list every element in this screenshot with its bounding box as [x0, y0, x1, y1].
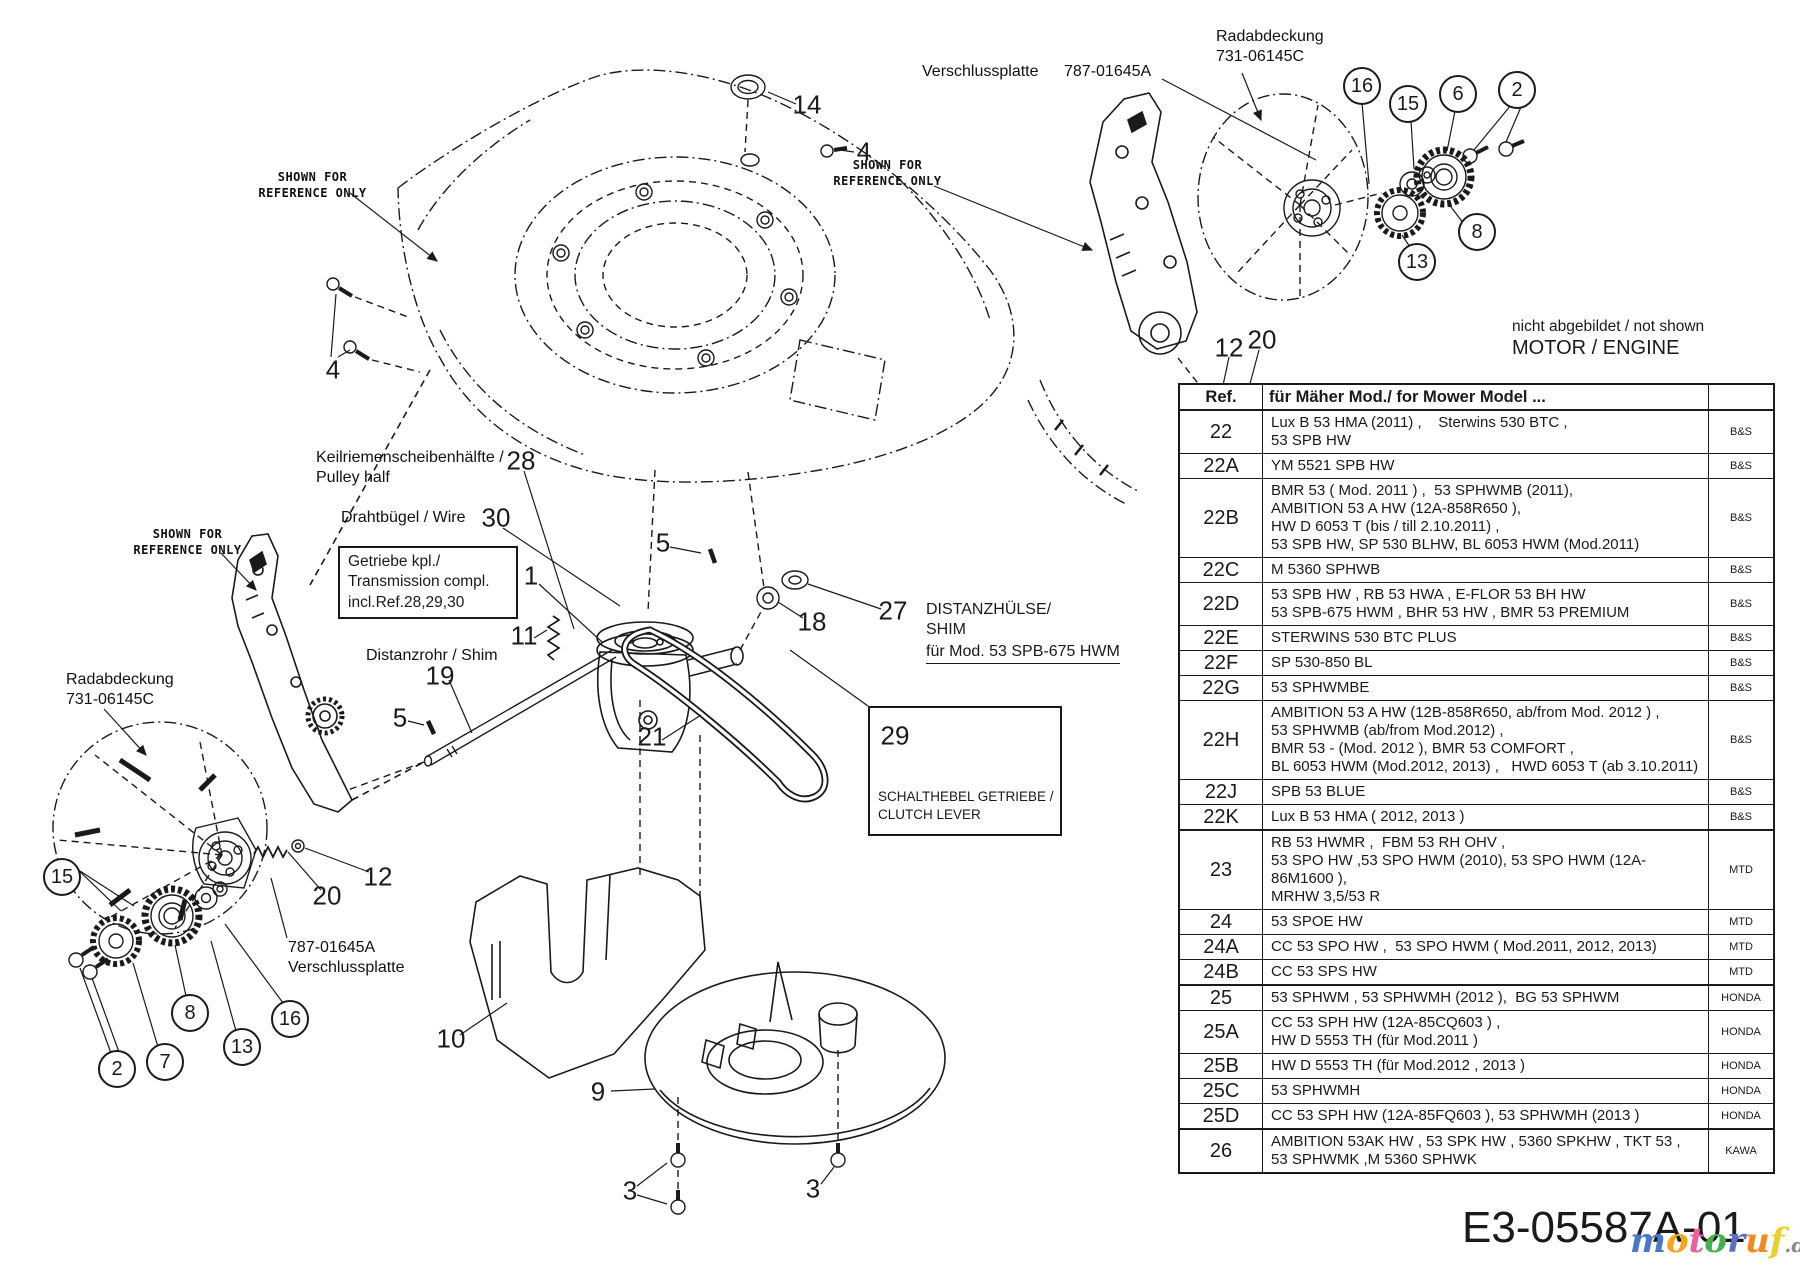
- cell-ref: 23: [1179, 830, 1263, 910]
- cell-brand: B&S: [1709, 454, 1775, 479]
- table-row: 22BBMR 53 ( Mod. 2011 ) , 53 SPHWMB (201…: [1179, 479, 1774, 558]
- cell-modelsc: 53 SPHWM , 53 SPHWMH (2012 ), BG 53 SPHW…: [1263, 985, 1709, 1011]
- table-row: 24BCC 53 SPS HWMTD: [1179, 960, 1774, 986]
- circled-6-right: 6: [1439, 75, 1477, 113]
- table-row: 26AMBITION 53AK HW , 53 SPK HW , 5360 SP…: [1179, 1129, 1774, 1173]
- cell-brand: HONDA: [1709, 1054, 1775, 1079]
- cell-ref: 22K: [1179, 805, 1263, 831]
- spacer-part-27: [748, 472, 808, 589]
- table-row: 22AYM 5521 SPB HWB&S: [1179, 454, 1774, 479]
- table-row: 24ACC 53 SPO HW , 53 SPO HWM ( Mod.2011,…: [1179, 935, 1774, 960]
- screws-part-4-left: [327, 278, 420, 372]
- callout-12-right: 12: [1215, 333, 1244, 364]
- watermark-letter: m: [1630, 1221, 1666, 1261]
- cell-ref: 25: [1179, 985, 1263, 1011]
- cell-ref: 25D: [1179, 1104, 1263, 1130]
- cell-brand: MTD: [1709, 910, 1775, 935]
- callout-12-left: 12: [364, 862, 393, 893]
- distance-sleeve-note: DISTANZHÜLSE/ SHIM für Mod. 53 SPB-675 H…: [926, 600, 1120, 664]
- circled-8-left: 8: [171, 994, 209, 1032]
- cell-modelsc: CC 53 SPO HW , 53 SPO HWM ( Mod.2011, 20…: [1263, 935, 1709, 960]
- callout-20-left: 20: [313, 881, 342, 912]
- distance-sleeve-model-note: für Mod. 53 SPB-675 HWM: [926, 642, 1120, 664]
- callout-3-right: 3: [806, 1174, 820, 1205]
- callout-4-left: 4: [326, 355, 340, 386]
- cell-ref: 22H: [1179, 701, 1263, 780]
- cell-modelsc: SP 530-850 BL: [1263, 651, 1709, 676]
- callout-14: 14: [793, 90, 822, 121]
- cell-brand: B&S: [1709, 780, 1775, 805]
- cell-modelsc: AMBITION 53AK HW , 53 SPK HW , 5360 SPKH…: [1263, 1129, 1709, 1173]
- cell-modelsc: 53 SPHWMBE: [1263, 676, 1709, 701]
- callout-5-left: 5: [393, 703, 407, 734]
- cell-ref: 26: [1179, 1129, 1263, 1173]
- cell-modelsc: AMBITION 53 A HW (12B-858R650, ab/from M…: [1263, 701, 1709, 780]
- transmission-note-box: Getriebe kpl./ Transmission compl. incl.…: [338, 546, 518, 619]
- callout-29: 29: [881, 721, 910, 752]
- belt-cover-part-10: [470, 868, 705, 1078]
- cell-modelsc: 53 SPHWMH: [1263, 1079, 1709, 1104]
- watermark: motoruf.de: [1630, 1224, 1800, 1258]
- cell-brand: B&S: [1709, 479, 1775, 558]
- cell-ref: 22: [1179, 410, 1263, 454]
- watermark-letter: u: [1745, 1221, 1770, 1261]
- cell-modelsc: M 5360 SPHWB: [1263, 558, 1709, 583]
- deck-bolt-holes: [553, 184, 797, 366]
- callout-5-mid: 5: [656, 528, 670, 559]
- watermark-letter: f: [1770, 1221, 1785, 1261]
- table-row: 25BHW D 5553 TH (für Mod.2012 , 2013 )HO…: [1179, 1054, 1774, 1079]
- callout-28: 28: [507, 446, 536, 477]
- circled-15-right: 15: [1389, 85, 1427, 123]
- callout-4-top: 4: [857, 137, 871, 168]
- cell-modelsc: CC 53 SPS HW: [1263, 960, 1709, 986]
- model-table-body: 22Lux B 53 HMA (2011) , Sterwins 530 BTC…: [1179, 410, 1774, 1173]
- right-gear-cluster: [1335, 141, 1524, 236]
- header-brand: [1709, 384, 1775, 410]
- cell-ref: 25B: [1179, 1054, 1263, 1079]
- clutch-lever-label: SCHALTHEBEL GETRIEBE / CLUTCH LEVER: [878, 788, 1054, 823]
- cell-ref: 24: [1179, 910, 1263, 935]
- cell-ref: 22J: [1179, 780, 1263, 805]
- header-model: für Mäher Mod./ for Mower Model ...: [1263, 384, 1709, 410]
- pin-part-5-left: [428, 721, 434, 734]
- table-row: 22Lux B 53 HMA (2011) , Sterwins 530 BTC…: [1179, 410, 1774, 454]
- washer-part-18: [740, 587, 779, 650]
- table-row: 22KLux B 53 HMA ( 2012, 2013 )B&S: [1179, 805, 1774, 831]
- callout-21: 21: [638, 722, 667, 753]
- radabdeckung-label-left: Radabdeckung 731-06145C: [66, 670, 174, 709]
- cell-modelsc: RB 53 HWMR , FBM 53 RH OHV , 53 SPO HW ,…: [1263, 830, 1709, 910]
- callout-18: 18: [798, 607, 827, 638]
- table-row: 25C53 SPHWMHHONDA: [1179, 1079, 1774, 1104]
- table-row: 22ESTERWINS 530 BTC PLUSB&S: [1179, 626, 1774, 651]
- table-row: 22JSPB 53 BLUEB&S: [1179, 780, 1774, 805]
- header-ref: Ref.: [1179, 384, 1263, 410]
- cell-brand: HONDA: [1709, 1011, 1775, 1054]
- callout-3-left: 3: [623, 1176, 637, 1207]
- spring-part-11: [548, 616, 559, 660]
- cell-brand: B&S: [1709, 805, 1775, 831]
- cell-modelsc: HW D 5553 TH (für Mod.2012 , 2013 ): [1263, 1054, 1709, 1079]
- right-closure-plate-dashed: [1028, 380, 1140, 505]
- cell-brand: HONDA: [1709, 1079, 1775, 1104]
- circled-13-right: 13: [1398, 243, 1436, 281]
- cell-brand: MTD: [1709, 935, 1775, 960]
- callout-1: 1: [524, 561, 538, 592]
- cell-modelsc: BMR 53 ( Mod. 2011 ) , 53 SPHWMB (2011),…: [1263, 479, 1709, 558]
- shown-for-reference-top: SHOWN FOR REFERENCE ONLY: [240, 170, 385, 201]
- cell-modelsc: 53 SPB HW , RB 53 HWA , E-FLOR 53 BH HW …: [1263, 583, 1709, 626]
- callout-27: 27: [879, 596, 908, 627]
- circled-13-left: 13: [223, 1028, 261, 1066]
- table-row: 2453 SPOE HWMTD: [1179, 910, 1774, 935]
- cell-modelsc: CC 53 SPH HW (12A-85FQ603 ), 53 SPHWMH (…: [1263, 1104, 1709, 1130]
- cell-brand: B&S: [1709, 583, 1775, 626]
- grommet-part-14: [731, 75, 765, 99]
- cell-brand: B&S: [1709, 558, 1775, 583]
- mower-deck-outline: [398, 70, 1014, 482]
- cell-brand: B&S: [1709, 410, 1775, 454]
- circled-7-left: 7: [146, 1043, 184, 1081]
- circled-16-left: 16: [271, 1000, 309, 1038]
- distance-sleeve-title: DISTANZHÜLSE/ SHIM: [926, 600, 1120, 640]
- cell-ref: 24A: [1179, 935, 1263, 960]
- shown-for-reference-right: SHOWN FOR REFERENCE ONLY: [815, 158, 960, 189]
- left-wheel-cover: [53, 722, 267, 934]
- callout-30: 30: [482, 503, 511, 534]
- cell-modelsc: CC 53 SPH HW (12A-85CQ603 ) , HW D 5553 …: [1263, 1011, 1709, 1054]
- table-row: 22G53 SPHWMBEB&S: [1179, 676, 1774, 701]
- watermark-suffix: .de: [1784, 1233, 1800, 1257]
- cell-modelsc: STERWINS 530 BTC PLUS: [1263, 626, 1709, 651]
- housing-bowl-part-9: [645, 962, 945, 1144]
- cell-brand: B&S: [1709, 651, 1775, 676]
- verschlussplatte-label-left: 787-01645A Verschlussplatte: [288, 938, 405, 977]
- shown-for-reference-left: SHOWN FOR REFERENCE ONLY: [115, 527, 260, 558]
- cell-ref: 22G: [1179, 676, 1263, 701]
- cell-modelsc: Lux B 53 HMA ( 2012, 2013 ): [1263, 805, 1709, 831]
- cell-brand: B&S: [1709, 701, 1775, 780]
- table-row: 22FSP 530-850 BLB&S: [1179, 651, 1774, 676]
- table-row: 22CM 5360 SPHWBB&S: [1179, 558, 1774, 583]
- circled-2-left: 2: [98, 1050, 136, 1088]
- verschlussplatte-name-top: Verschlussplatte: [922, 62, 1039, 82]
- axle-shaft-part-19: [348, 650, 616, 790]
- callout-19: 19: [426, 661, 455, 692]
- cell-brand: B&S: [1709, 676, 1775, 701]
- table-row: 25DCC 53 SPH HW (12A-85FQ603 ), 53 SPHWM…: [1179, 1104, 1774, 1130]
- cell-brand: MTD: [1709, 830, 1775, 910]
- cell-modelsc: 53 SPOE HW: [1263, 910, 1709, 935]
- wire-label: Drahtbügel / Wire: [341, 508, 466, 528]
- cell-ref: 22F: [1179, 651, 1263, 676]
- parts-diagram-page: { "labels": { "shown_for_reference": "SH…: [0, 0, 1800, 1272]
- cell-modelsc: SPB 53 BLUE: [1263, 780, 1709, 805]
- right-lever-bracket: [1090, 93, 1197, 354]
- cell-brand: B&S: [1709, 626, 1775, 651]
- cell-ref: 25A: [1179, 1011, 1263, 1054]
- table-row: 25ACC 53 SPH HW (12A-85CQ603 ) , HW D 55…: [1179, 1011, 1774, 1054]
- circled-15-left: 15: [43, 858, 81, 896]
- callout-20-right: 20: [1248, 325, 1277, 356]
- left-spring-and-washer: [254, 840, 304, 857]
- cell-ref: 22B: [1179, 479, 1263, 558]
- table-header-row: Ref. für Mäher Mod./ for Mower Model ...: [1179, 384, 1774, 410]
- watermark-letter: o: [1666, 1221, 1689, 1261]
- cell-ref: 22D: [1179, 583, 1263, 626]
- cell-ref: 25C: [1179, 1079, 1263, 1104]
- callout-9: 9: [591, 1077, 605, 1108]
- cell-ref: 22A: [1179, 454, 1263, 479]
- callout-10: 10: [437, 1024, 466, 1055]
- pulley-half-label: Keilriemenscheibenhälfte / Pulley half: [316, 448, 504, 487]
- pin-part-5-mid: [710, 549, 715, 563]
- circled-2-right: 2: [1498, 71, 1536, 109]
- table-row: 22D53 SPB HW , RB 53 HWA , E-FLOR 53 BH …: [1179, 583, 1774, 626]
- cell-brand: KAWA: [1709, 1129, 1775, 1173]
- right-wheel-cover: [1198, 94, 1368, 300]
- table-row: 2553 SPHWM , 53 SPHWMH (2012 ), BG 53 SP…: [1179, 985, 1774, 1011]
- circled-16-right: 16: [1343, 67, 1381, 105]
- cell-modelsc: Lux B 53 HMA (2011) , Sterwins 530 BTC ,…: [1263, 410, 1709, 454]
- cell-brand: HONDA: [1709, 985, 1775, 1011]
- radabdeckung-label-top: Radabdeckung 731-06145C: [1216, 27, 1324, 66]
- watermark-letter: o: [1704, 1221, 1727, 1261]
- motor-engine-note: MOTOR / ENGINE: [1512, 336, 1704, 361]
- cell-ref: 22C: [1179, 558, 1263, 583]
- cell-ref: 24B: [1179, 960, 1263, 986]
- cell-brand: HONDA: [1709, 1104, 1775, 1130]
- not-shown-note: nicht abgebildet / not shown: [1512, 317, 1704, 336]
- circled-8-right: 8: [1458, 213, 1496, 251]
- verschlussplatte-part-top: 787-01645A: [1064, 62, 1151, 82]
- engine-note: nicht abgebildet / not shown MOTOR / ENG…: [1512, 317, 1704, 361]
- mower-model-table: Ref. für Mäher Mod./ for Mower Model ...…: [1178, 383, 1775, 1174]
- watermark-letter: t: [1689, 1221, 1705, 1261]
- cell-ref: 22E: [1179, 626, 1263, 651]
- watermark-letter: r: [1727, 1221, 1745, 1261]
- cell-brand: MTD: [1709, 960, 1775, 986]
- cell-modelsc: YM 5521 SPB HW: [1263, 454, 1709, 479]
- table-row: 22HAMBITION 53 A HW (12B-858R650, ab/fro…: [1179, 701, 1774, 780]
- table-row: 23RB 53 HWMR , FBM 53 RH OHV , 53 SPO HW…: [1179, 830, 1774, 910]
- callout-11: 11: [511, 621, 538, 652]
